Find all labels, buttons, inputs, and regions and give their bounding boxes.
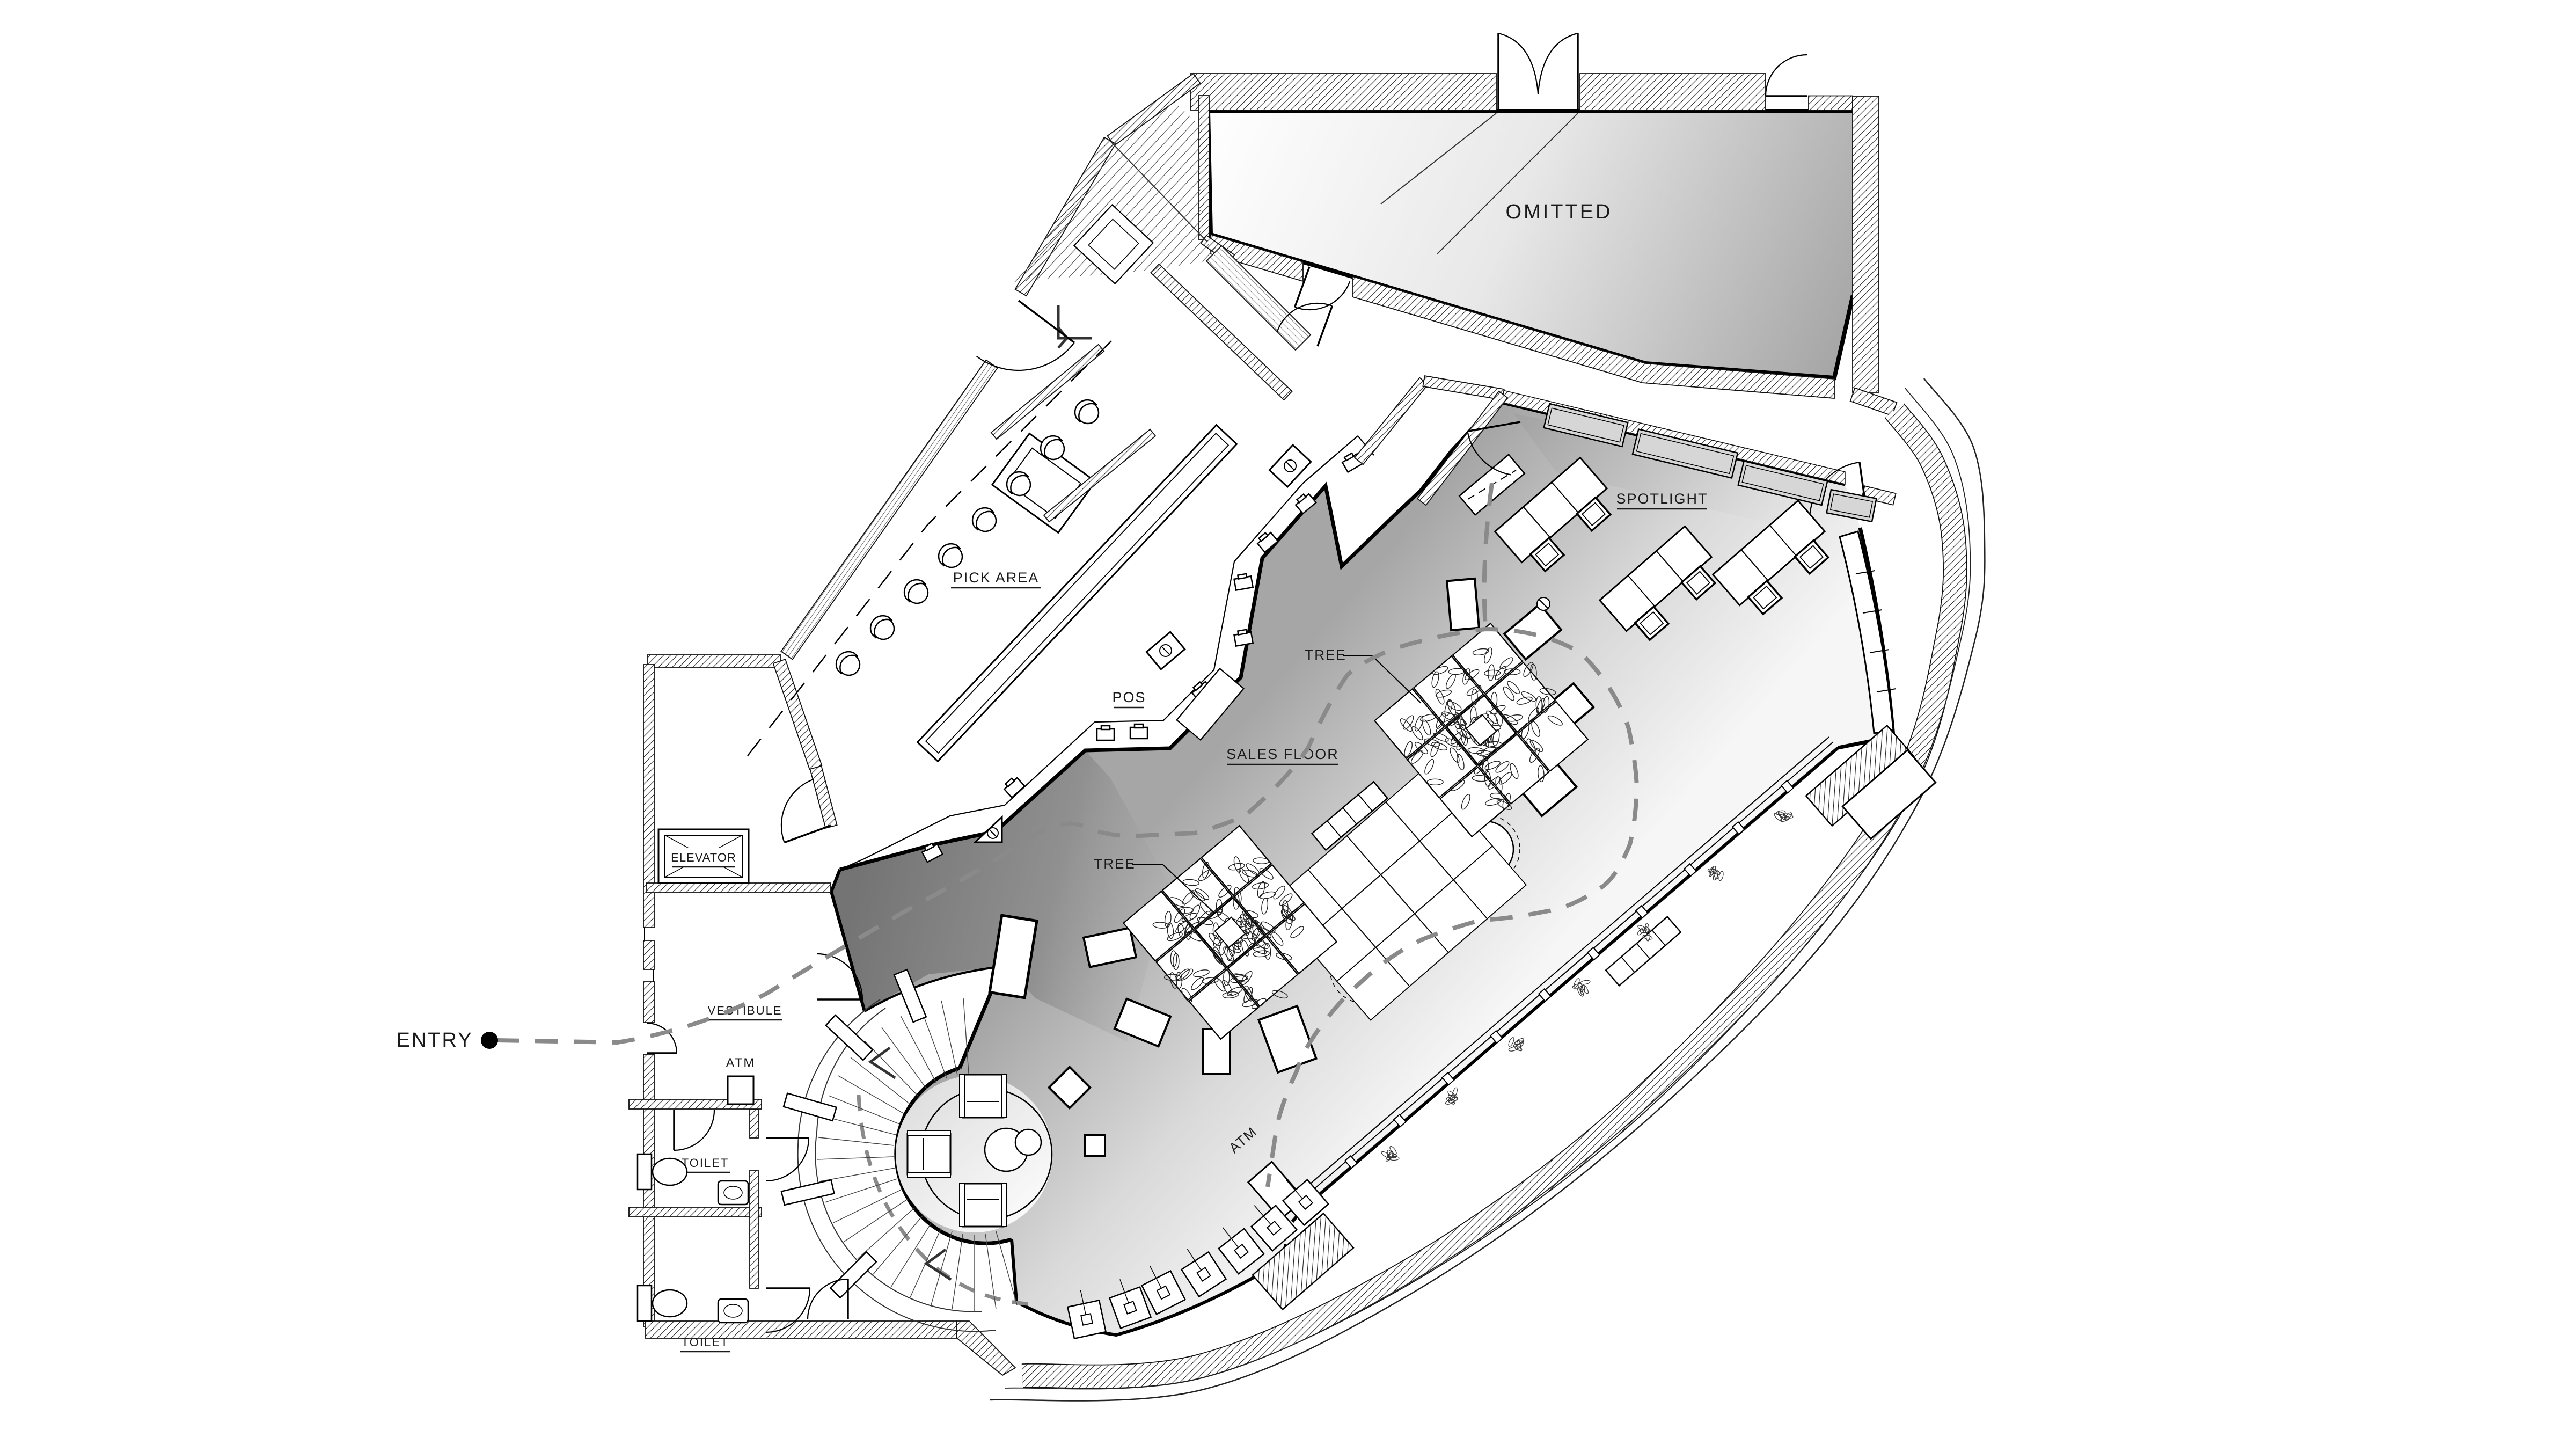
- svg-text:TREE: TREE: [1305, 647, 1346, 663]
- svg-text:SPOTLIGHT: SPOTLIGHT: [1616, 491, 1708, 507]
- svg-text:OMITTED: OMITTED: [1506, 201, 1613, 223]
- svg-text:TOILET: TOILET: [682, 1156, 729, 1170]
- svg-text:SALES FLOOR: SALES FLOOR: [1226, 746, 1339, 762]
- svg-text:TOILET: TOILET: [682, 1336, 729, 1349]
- svg-text:POS: POS: [1112, 689, 1146, 705]
- svg-text:ENTRY: ENTRY: [396, 1029, 473, 1052]
- svg-text:TREE: TREE: [1094, 856, 1135, 872]
- svg-text:ATM: ATM: [726, 1056, 756, 1070]
- svg-text:ELEVATOR: ELEVATOR: [671, 851, 736, 864]
- svg-text:PICK AREA: PICK AREA: [953, 570, 1040, 586]
